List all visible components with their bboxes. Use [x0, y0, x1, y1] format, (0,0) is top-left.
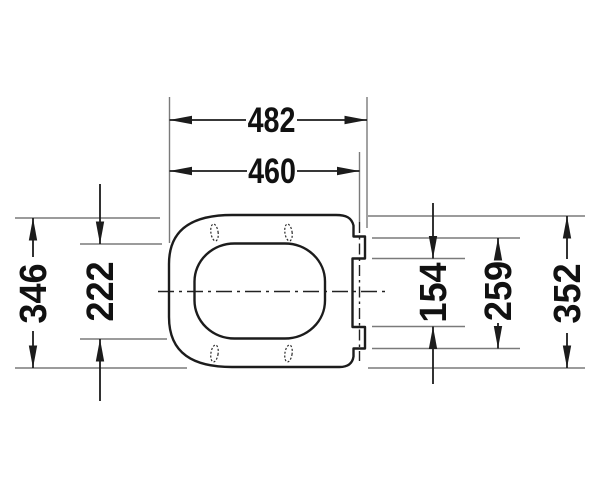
- bumper-bottom-right: [284, 345, 293, 363]
- label-inner-opening-width: 222: [78, 261, 121, 321]
- technical-drawing: 482 460 346 222 154 259 352: [0, 0, 600, 500]
- label-seat-outer-width: 346: [11, 263, 54, 323]
- dimension-labels: 482 460 346 222 154 259 352: [11, 100, 588, 323]
- drawing-canvas: 482 460 346 222 154 259 352: [0, 0, 600, 500]
- label-hinge-outer-span: 259: [476, 261, 519, 321]
- bumper-top-right: [284, 224, 293, 242]
- label-cover-width: 352: [545, 263, 588, 323]
- label-length-to-hinge-axis: 460: [248, 151, 296, 190]
- bumper-top-left: [210, 224, 219, 242]
- label-hinge-inner-span: 154: [411, 262, 454, 323]
- label-overall-length: 482: [248, 100, 296, 139]
- bumper-bottom-left: [210, 345, 219, 363]
- dimension-lines: [29, 116, 571, 401]
